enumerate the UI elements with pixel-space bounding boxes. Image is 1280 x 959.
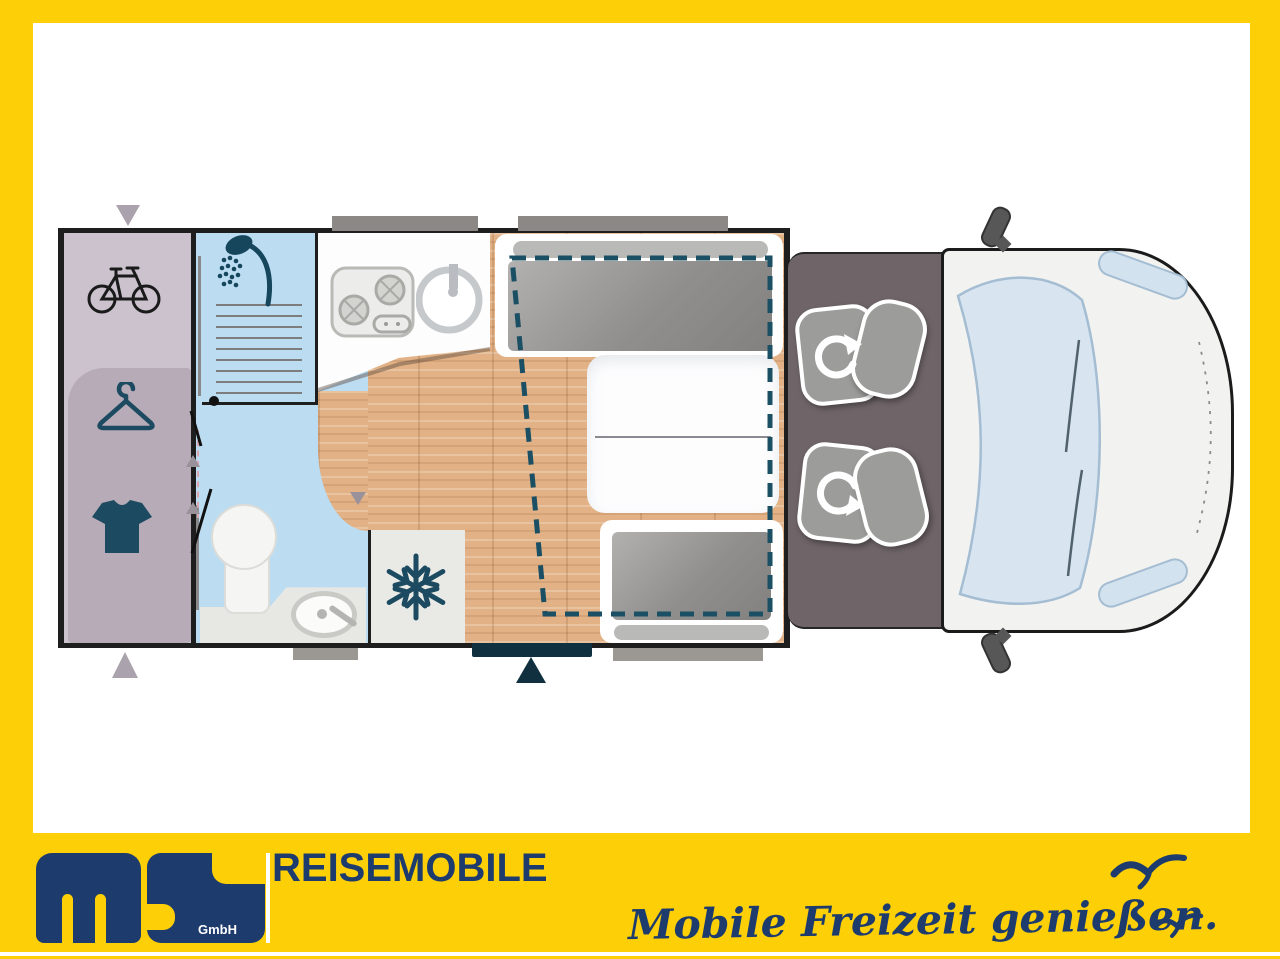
- bench-rear-backrest: [614, 625, 769, 640]
- bird-icon: [1152, 910, 1204, 940]
- shower-wall-right: [315, 233, 318, 405]
- wall-left: [58, 228, 64, 648]
- bench-front-cushion: [508, 261, 772, 351]
- garage-door-arrow-bottom-icon: [112, 652, 138, 678]
- bench-rear-cushion: [612, 532, 771, 620]
- door-track-upper: [198, 256, 201, 396]
- shower-icon: [210, 228, 290, 318]
- window-marker-kitchen: [332, 216, 478, 231]
- logo-s-notch: [142, 904, 175, 930]
- logo-m-slot: [95, 894, 106, 943]
- clothes-hanger-icon: [96, 382, 156, 436]
- table-divider-line: [595, 436, 771, 438]
- kitchen-sink-icon: [416, 264, 486, 334]
- stove-icon: [330, 266, 415, 338]
- logo-s-notch: [212, 848, 265, 884]
- door-slide-arrow-icon: [186, 502, 200, 514]
- door-slide-arrow-icon: [186, 455, 200, 467]
- shower-door-hinge: [209, 396, 219, 406]
- dinette-table-bed: [587, 355, 779, 513]
- toilet-icon: [211, 504, 277, 570]
- vehicle-front-body: [941, 248, 1234, 633]
- logo-letter-m: [36, 853, 141, 943]
- entry-step-marker: [613, 648, 763, 661]
- tagline: Mobile Freizeit genießen.: [628, 891, 1219, 949]
- bicycle-icon: [85, 256, 163, 316]
- door-track-lower: [196, 505, 199, 610]
- logo-gmbh-label: GmbH: [198, 922, 237, 937]
- t-shirt-icon: [92, 500, 152, 554]
- bird-icon: [1110, 850, 1188, 892]
- entry-door-arrow-icon: [516, 657, 546, 683]
- logo-m-slot: [62, 894, 73, 943]
- window-marker-lounge: [518, 216, 728, 231]
- ms-logo: GmbH: [33, 848, 273, 948]
- bench-front-backrest: [513, 241, 768, 258]
- refrigerator: [368, 530, 465, 643]
- footer-divider: [0, 952, 1280, 956]
- brand-line: REISEMOBILE: [272, 846, 548, 891]
- advert-canvas: GmbH REISEMOBILE Mobile Freizeit genieße…: [0, 0, 1280, 959]
- door-swing-arrow-icon: [350, 492, 366, 505]
- logo-edge-highlight: [266, 853, 270, 943]
- shower-wall-bottom: [202, 402, 318, 405]
- washbasin-drain: [317, 609, 327, 619]
- entry-door-marker: [472, 643, 592, 657]
- garage-door-arrow-top-icon: [116, 205, 140, 226]
- service-hatch-marker: [293, 648, 358, 660]
